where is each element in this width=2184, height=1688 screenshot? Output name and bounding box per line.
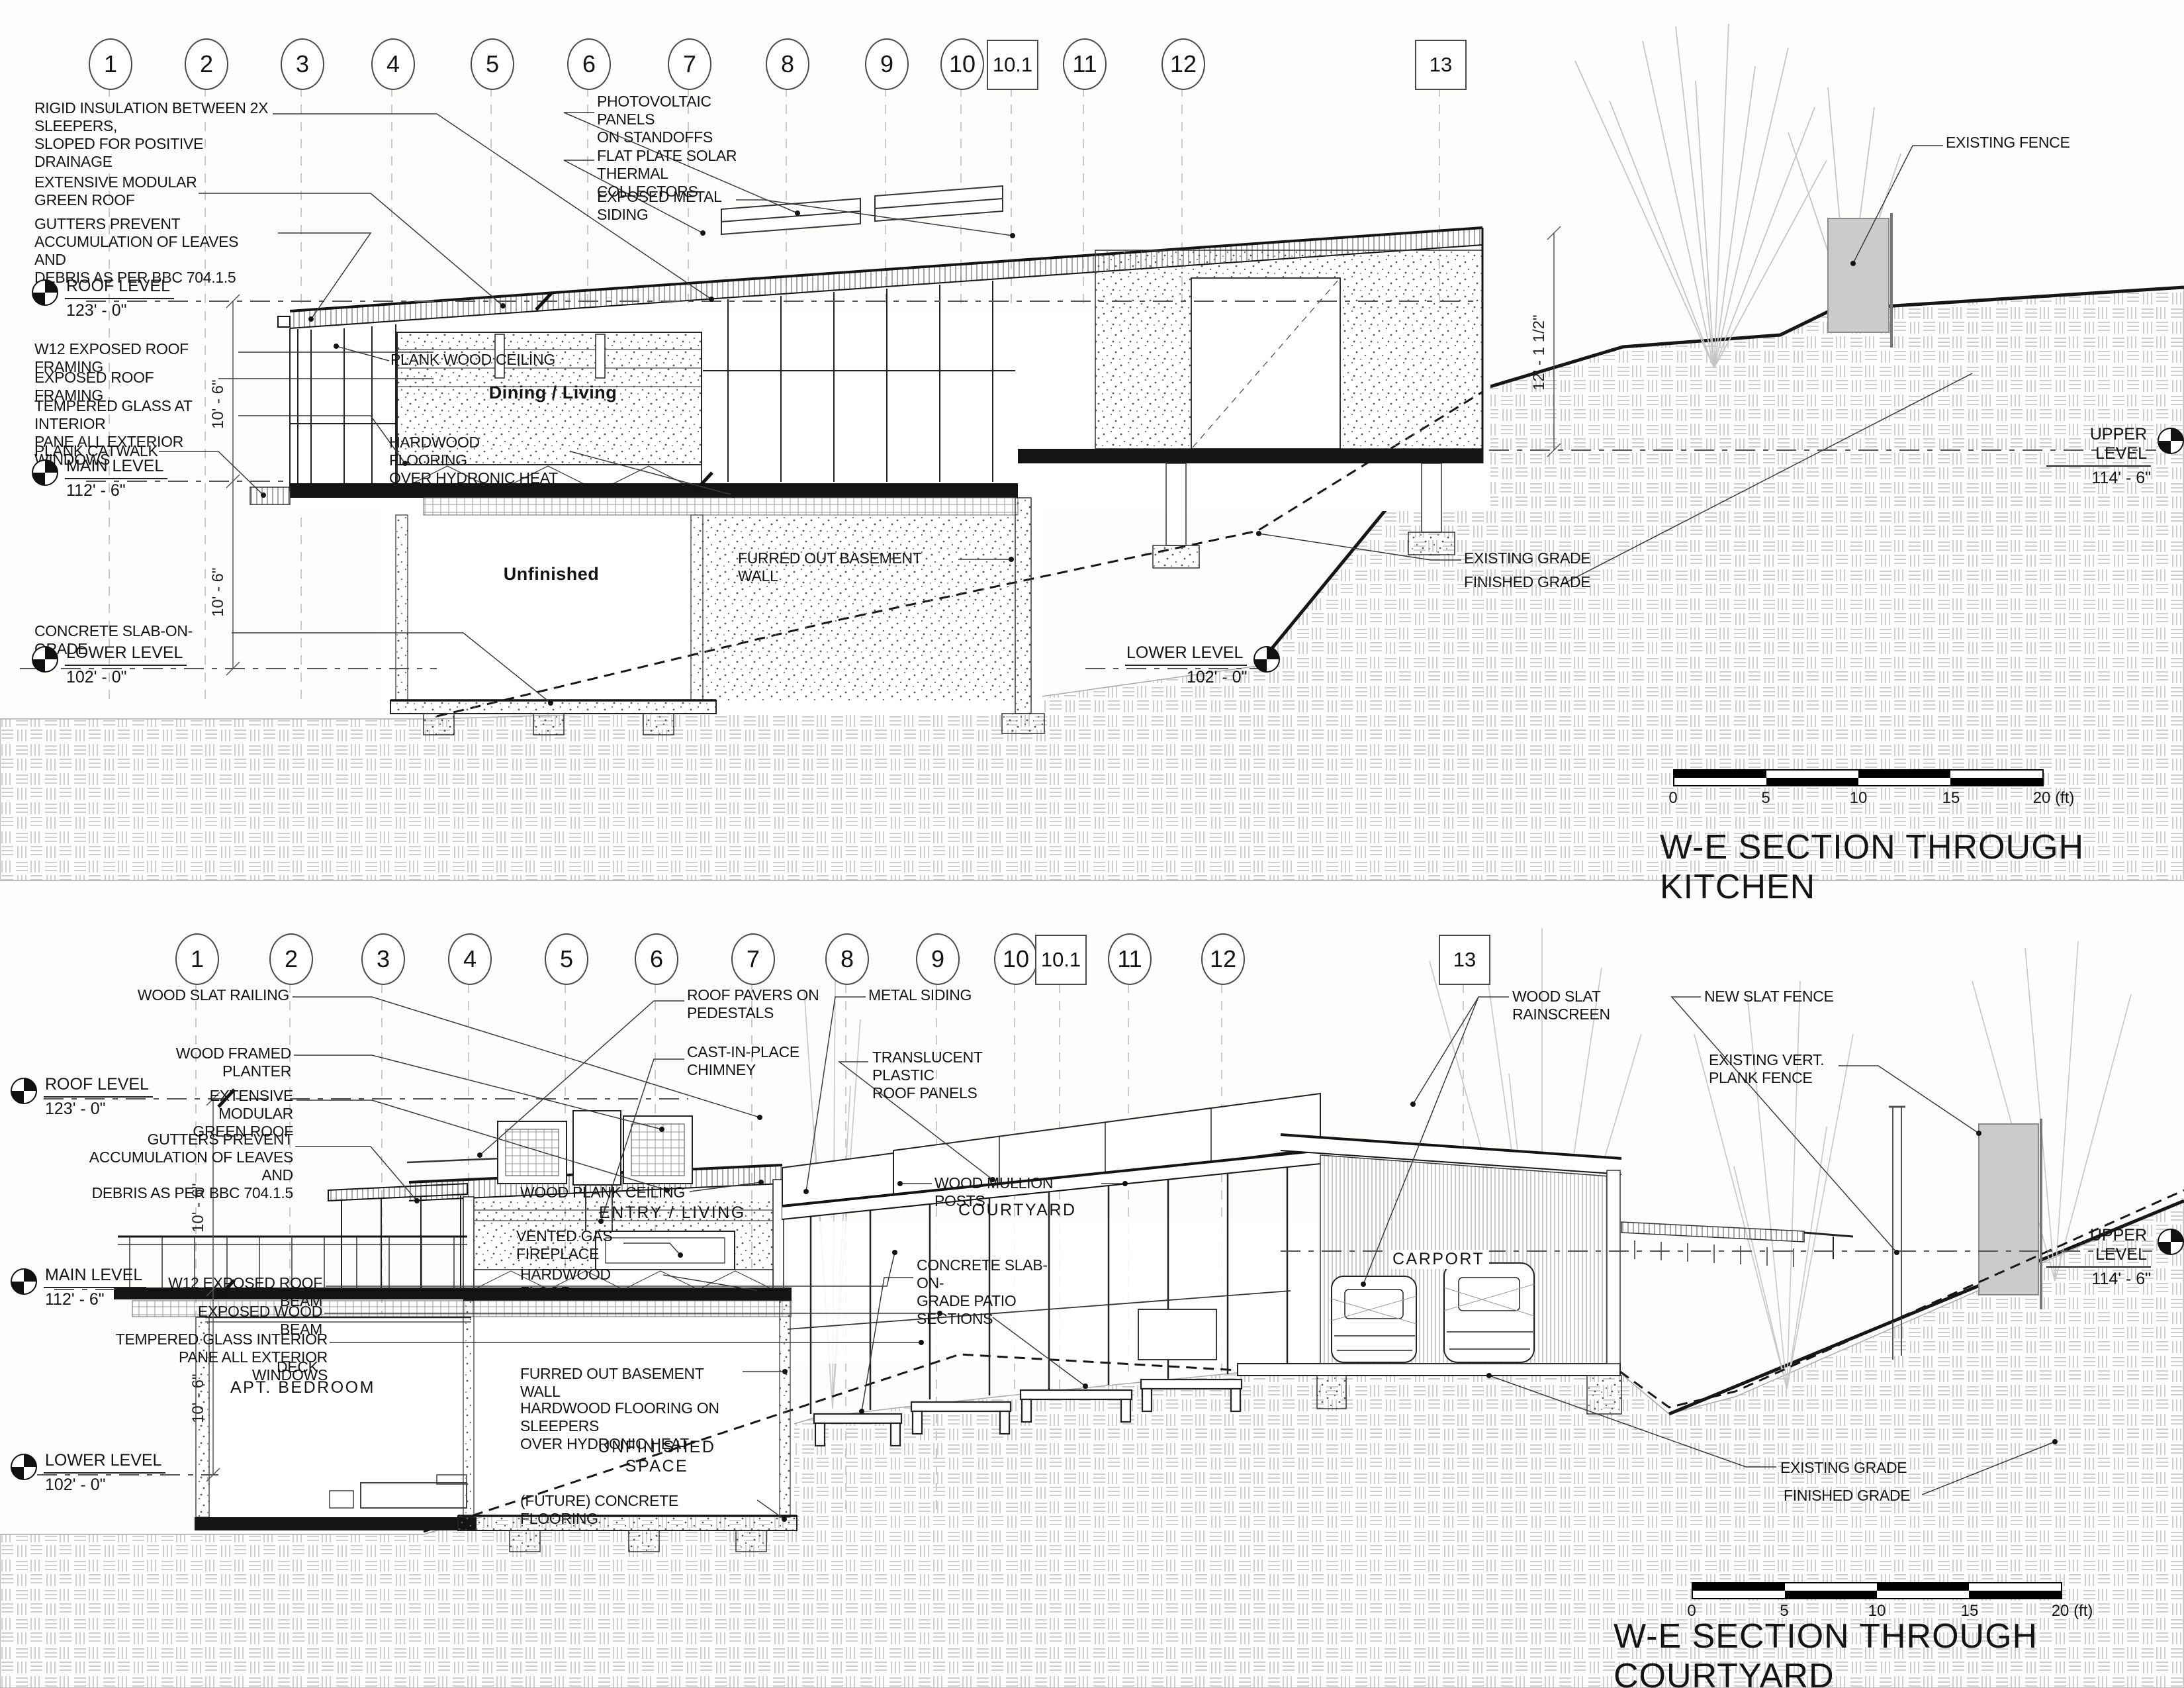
annotation-label: PLANK WOOD CEILING	[390, 351, 563, 369]
level-name: LOWER LEVEL	[65, 643, 187, 666]
annotation-label: EXISTING GRADE	[1780, 1459, 1916, 1477]
annotation-label: HARDWOOD FLOORING OVER HYDRONIC HEAT	[389, 434, 561, 487]
grid-bubble: 7	[668, 38, 711, 90]
grid-bubble: 3	[281, 38, 324, 90]
annotation-label: WOOD PLANK CEILING	[520, 1184, 689, 1201]
level-name: MAIN LEVEL	[65, 457, 167, 479]
level-target-icon	[32, 646, 58, 673]
room-label: ENTRY / LIVING	[599, 1203, 754, 1223]
grid-bubble: 12	[1201, 933, 1245, 985]
level-name: ROOF LEVEL	[65, 277, 174, 299]
grid-bubble: 8	[825, 933, 869, 985]
level-target-icon	[32, 279, 58, 306]
grid-bubble: 11	[1063, 38, 1107, 90]
annotation-label: WOOD SLAT RAINSCREEN	[1512, 988, 1701, 1023]
level-marker: UPPER LEVEL114' - 6"	[2046, 1226, 2184, 1289]
level-elevation: 114' - 6"	[2046, 467, 2151, 488]
scale-tick: 15	[1942, 789, 1960, 808]
grid-bubble: 13	[1439, 935, 1490, 985]
level-name: UPPER LEVEL	[2046, 425, 2151, 467]
level-target-icon	[32, 459, 58, 486]
annotation-label: EXISTING VERT. PLANK FENCE	[1709, 1051, 1838, 1087]
level-target-icon	[11, 1454, 37, 1480]
grid-bubble: 10	[940, 38, 984, 90]
grid-bubble: 1	[175, 933, 219, 985]
level-target-icon	[2158, 428, 2184, 454]
annotation-label: HARDWOOD FLOOR	[520, 1266, 662, 1301]
level-elevation: 123' - 0"	[44, 1098, 153, 1119]
level-target-icon	[11, 1268, 37, 1295]
annotation-label: FINISHED GRADE	[1784, 1487, 1919, 1505]
annotation-label: ROOF PAVERS ON PEDESTALS	[687, 986, 836, 1022]
level-marker: MAIN LEVEL112' - 6"	[32, 457, 167, 500]
dimension-label: 10' - 6"	[189, 1374, 208, 1423]
grid-bubble: 2	[185, 38, 228, 90]
annotation-label: FURRED OUT BASEMENT WALL	[520, 1365, 742, 1401]
grid-bubble: 7	[731, 933, 775, 985]
grid-bubble: 10.1	[1035, 935, 1087, 985]
annotation-label: EXTENSIVE MODULAR GREEN ROOF	[34, 173, 200, 209]
dimension-label: 10' - 6"	[209, 380, 228, 429]
grid-bubble: 8	[766, 38, 809, 90]
annotation-label: PHOTOVOLTAIC PANELS ON STANDOFFS	[597, 93, 762, 146]
annotation-label: RIGID INSULATION BETWEEN 2X SLEEPERS, SL…	[34, 99, 279, 171]
annotation-label: CAST-IN-PLACE CHIMNEY	[687, 1043, 823, 1079]
level-elevation: 112' - 6"	[65, 479, 167, 500]
annotation-label: EXISTING GRADE	[1464, 549, 1603, 567]
level-marker: LOWER LEVEL102' - 0"	[1125, 643, 1280, 687]
annotation-label: TRANSLUCENT PLASTIC ROOF PANELS	[872, 1049, 1048, 1102]
annotation-label: EXPOSED METAL SIDING	[597, 188, 736, 224]
dimension-label: 10' - 6"	[209, 568, 228, 617]
annotation-label: FURRED OUT BASEMENT WALL	[738, 549, 960, 585]
level-name: LOWER LEVEL	[44, 1451, 165, 1474]
scale-bar-blocks	[1673, 769, 2044, 786]
level-elevation: 102' - 0"	[65, 666, 187, 687]
scale-tick: 20 (ft)	[2033, 789, 2075, 808]
room-label: CARPORT	[1390, 1250, 1489, 1269]
dimension-label: 10' - 6"	[189, 1184, 208, 1233]
room-label: UNFINISHED SPACE	[596, 1438, 718, 1476]
scale-tick: 5	[1761, 789, 1770, 808]
section-title: W-E SECTION THROUGH KITCHEN	[1660, 827, 2184, 907]
room-label: Dining / Living	[482, 383, 624, 403]
grid-bubble: 6	[635, 933, 678, 985]
level-marker: LOWER LEVEL102' - 0"	[32, 643, 187, 687]
scale-bar: 0 5 10 15 20 (ft)	[1673, 769, 2044, 812]
grid-bubble: 5	[471, 38, 514, 90]
level-elevation: 112' - 6"	[44, 1288, 146, 1309]
level-marker: ROOF LEVEL123' - 0"	[32, 277, 174, 320]
annotation-label: FINISHED GRADE	[1464, 573, 1603, 591]
annotation-label: GUTTERS PREVENT ACCUMULATION OF LEAVES A…	[56, 1131, 293, 1203]
level-name: MAIN LEVEL	[44, 1266, 146, 1288]
annotation-label: METAL SIDING	[868, 986, 991, 1004]
level-marker: MAIN LEVEL112' - 6"	[11, 1266, 146, 1309]
level-elevation: 114' - 6"	[2046, 1268, 2151, 1289]
annotation-label: VENTED GAS FIREPLACE	[516, 1227, 625, 1263]
annotation-label: CONCRETE SLAB-ON- GRADE PATIO SECTIONS	[917, 1256, 1072, 1329]
drawing-sheet: 1 2 3 4 5 6 7 8 9 10 10.1 11 12 13 RIGID…	[0, 0, 2184, 1688]
scale-tick: 0	[1668, 789, 1677, 808]
level-target-icon	[11, 1078, 37, 1104]
annotation-label: WOOD SLAT RAILING	[136, 986, 289, 1004]
level-name: ROOF LEVEL	[44, 1075, 153, 1098]
level-elevation: 102' - 0"	[44, 1474, 165, 1495]
grid-bubble: 5	[545, 933, 588, 985]
level-name: UPPER LEVEL	[2046, 1226, 2151, 1268]
annotation-label: EXISTING FENCE	[1946, 134, 2085, 152]
grid-bubble: 9	[865, 38, 909, 90]
grid-bubble: 13	[1415, 40, 1467, 90]
grid-bubble: 1	[89, 38, 132, 90]
grid-bubble: 4	[371, 38, 415, 90]
room-label: Unfinished	[495, 564, 608, 585]
grid-bubble: 6	[567, 38, 611, 90]
level-marker: LOWER LEVEL102' - 0"	[11, 1451, 165, 1495]
grid-bubble: 3	[361, 933, 405, 985]
grid-bubble: 12	[1161, 38, 1205, 90]
level-target-icon	[2158, 1229, 2184, 1255]
annotation-label: DECK	[277, 1358, 330, 1376]
annotation-label: (FUTURE) CONCRETE FLOORING	[520, 1492, 758, 1528]
scale-bar-blocks	[1692, 1582, 2062, 1599]
annotation-label: NEW SLAT FENCE	[1704, 988, 1846, 1006]
level-elevation: 102' - 0"	[1125, 666, 1247, 687]
level-marker: ROOF LEVEL123' - 0"	[11, 1075, 153, 1119]
room-label: APT. BEDROOM	[230, 1378, 386, 1397]
grid-bubble: 4	[448, 933, 492, 985]
level-elevation: 123' - 0"	[65, 299, 174, 320]
grid-bubble: 10	[994, 933, 1038, 985]
section-title: W-E SECTION THROUGH COURTYARD	[1614, 1617, 2184, 1688]
level-name: LOWER LEVEL	[1125, 643, 1247, 666]
scale-tick: 10	[1850, 789, 1868, 808]
grid-bubble: 10.1	[987, 40, 1038, 90]
dimension-label: 12' - 1 1/2"	[1530, 314, 1549, 391]
annotation-label: TEMPERED GLASS INTERIOR PANE ALL EXTERIO…	[113, 1331, 328, 1384]
level-target-icon	[1253, 646, 1280, 673]
level-marker: UPPER LEVEL114' - 6"	[2046, 425, 2184, 488]
grid-bubble: 2	[269, 933, 313, 985]
room-label: COURTYARD	[958, 1201, 1081, 1220]
grid-bubble: 9	[916, 933, 960, 985]
grid-bubble: 11	[1108, 933, 1152, 985]
